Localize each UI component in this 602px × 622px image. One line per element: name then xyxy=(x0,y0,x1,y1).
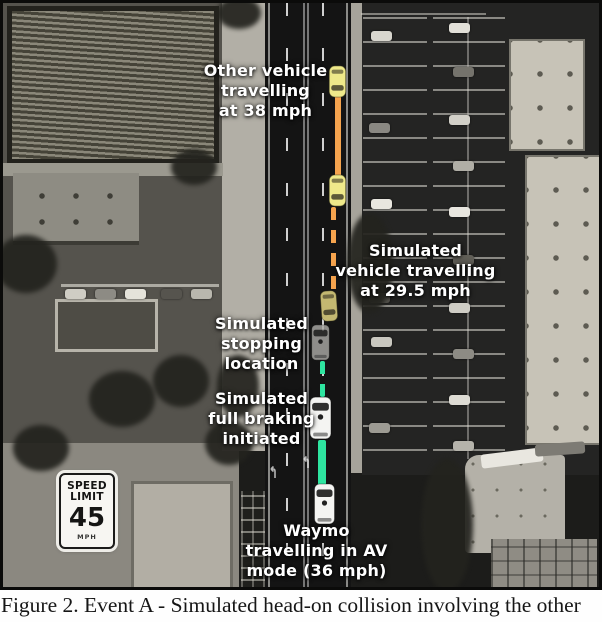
parking-stalls-column xyxy=(433,17,505,459)
label-line: travelling in AV xyxy=(234,541,399,561)
figure-2-panel: Other vehicle travelling at 38 mph Simul… xyxy=(0,0,602,622)
parking-stall-divider xyxy=(467,17,469,459)
speed-limit-sign-text: SPEED LIMIT xyxy=(67,481,107,503)
building-roof-left-lower xyxy=(55,299,158,352)
parked-car xyxy=(369,123,390,133)
label-line: Other vehicle xyxy=(183,61,348,81)
parked-car xyxy=(95,289,116,299)
speed-limit-value: 45 xyxy=(69,505,105,532)
label-line: travelling xyxy=(183,81,348,101)
label-line: vehicle travelling xyxy=(333,261,498,281)
left-turn-arrow-road-marking xyxy=(267,465,279,479)
waymo-van-icon xyxy=(313,483,336,525)
label-line: stopping xyxy=(199,334,324,354)
tree xyxy=(171,149,217,185)
label-line: Waymo xyxy=(234,521,399,541)
parked-car xyxy=(161,289,182,299)
aerial-photo: Other vehicle travelling at 38 mph Simul… xyxy=(0,0,602,590)
parked-car xyxy=(449,115,470,125)
parked-car xyxy=(371,199,392,209)
parked-car xyxy=(125,289,146,299)
label-waymo: Waymo travelling in AV mode (36 mph) xyxy=(234,521,399,581)
sign-word-limit: LIMIT xyxy=(70,491,104,503)
building-bottom-right xyxy=(491,539,597,590)
label-line: at 29.5 mph xyxy=(333,281,498,301)
parked-car xyxy=(453,441,474,451)
tree xyxy=(89,371,155,427)
parking-stripe-left xyxy=(61,284,219,287)
tree-row-bottom-right xyxy=(421,458,473,590)
parked-car xyxy=(453,67,474,77)
label-simulated-vehicle: Simulated vehicle travelling at 29.5 mph xyxy=(333,241,498,301)
building-right-upper xyxy=(509,39,585,151)
label-line: mode (36 mph) xyxy=(234,561,399,581)
left-turn-arrow-road-marking xyxy=(300,455,312,469)
building-right-lower xyxy=(525,155,602,445)
parked-car xyxy=(453,349,474,359)
parked-car xyxy=(191,289,212,299)
tree xyxy=(13,425,69,471)
label-line: at 38 mph xyxy=(183,101,348,121)
label-stopping-location: Simulated stopping location xyxy=(199,314,324,374)
parked-car xyxy=(369,423,390,433)
building-bottom-center xyxy=(131,481,233,590)
parked-car xyxy=(449,303,470,313)
building-roof-left xyxy=(13,173,139,245)
parked-car xyxy=(371,337,392,347)
label-line: Simulated xyxy=(189,389,334,409)
label-full-braking: Simulated full braking initiated xyxy=(189,389,334,449)
label-line: Simulated xyxy=(199,314,324,334)
other-vehicle-car-icon xyxy=(328,174,347,207)
parked-car xyxy=(65,289,86,299)
parked-car xyxy=(449,395,470,405)
parked-car xyxy=(453,161,474,171)
figure-caption: Figure 2. Event A - Simulated head-on co… xyxy=(0,590,602,622)
label-other-vehicle: Other vehicle travelling at 38 mph xyxy=(183,61,348,121)
parking-lot-line xyxy=(361,13,486,15)
label-line: Simulated xyxy=(333,241,498,261)
parked-car xyxy=(371,31,392,41)
speed-limit-sign: SPEED LIMIT 45 MPH xyxy=(59,473,115,549)
parked-car xyxy=(449,23,470,33)
label-line: initiated xyxy=(189,429,334,449)
label-line: full braking xyxy=(189,409,334,429)
speed-limit-unit: MPH xyxy=(77,533,97,541)
label-line: location xyxy=(199,354,324,374)
parked-car xyxy=(449,207,470,217)
